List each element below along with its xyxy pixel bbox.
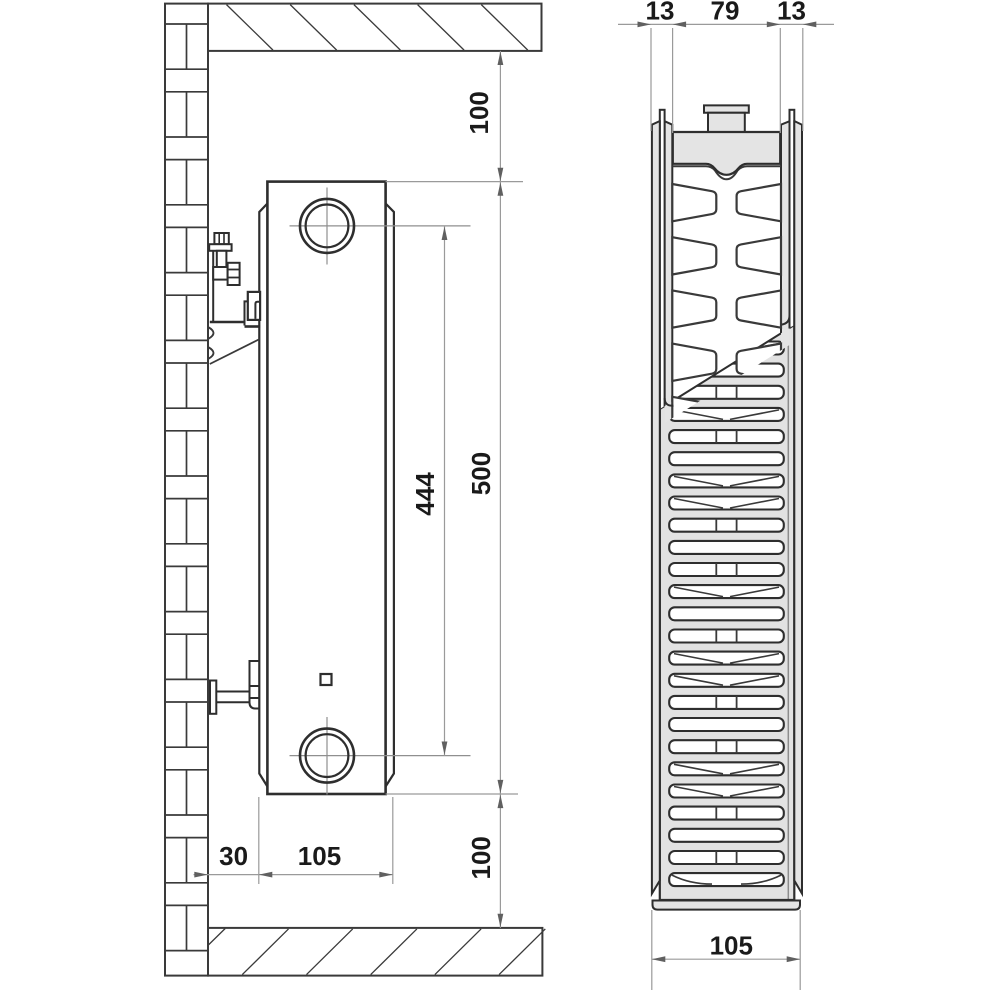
svg-text:13: 13: [646, 0, 675, 26]
svg-text:100: 100: [464, 91, 494, 134]
svg-text:105: 105: [298, 841, 341, 871]
svg-text:30: 30: [219, 841, 248, 871]
svg-text:500: 500: [466, 452, 496, 495]
svg-text:105: 105: [710, 931, 753, 961]
svg-text:13: 13: [777, 0, 806, 26]
svg-text:444: 444: [410, 472, 440, 516]
svg-text:100: 100: [466, 836, 496, 879]
svg-text:79: 79: [711, 0, 740, 26]
